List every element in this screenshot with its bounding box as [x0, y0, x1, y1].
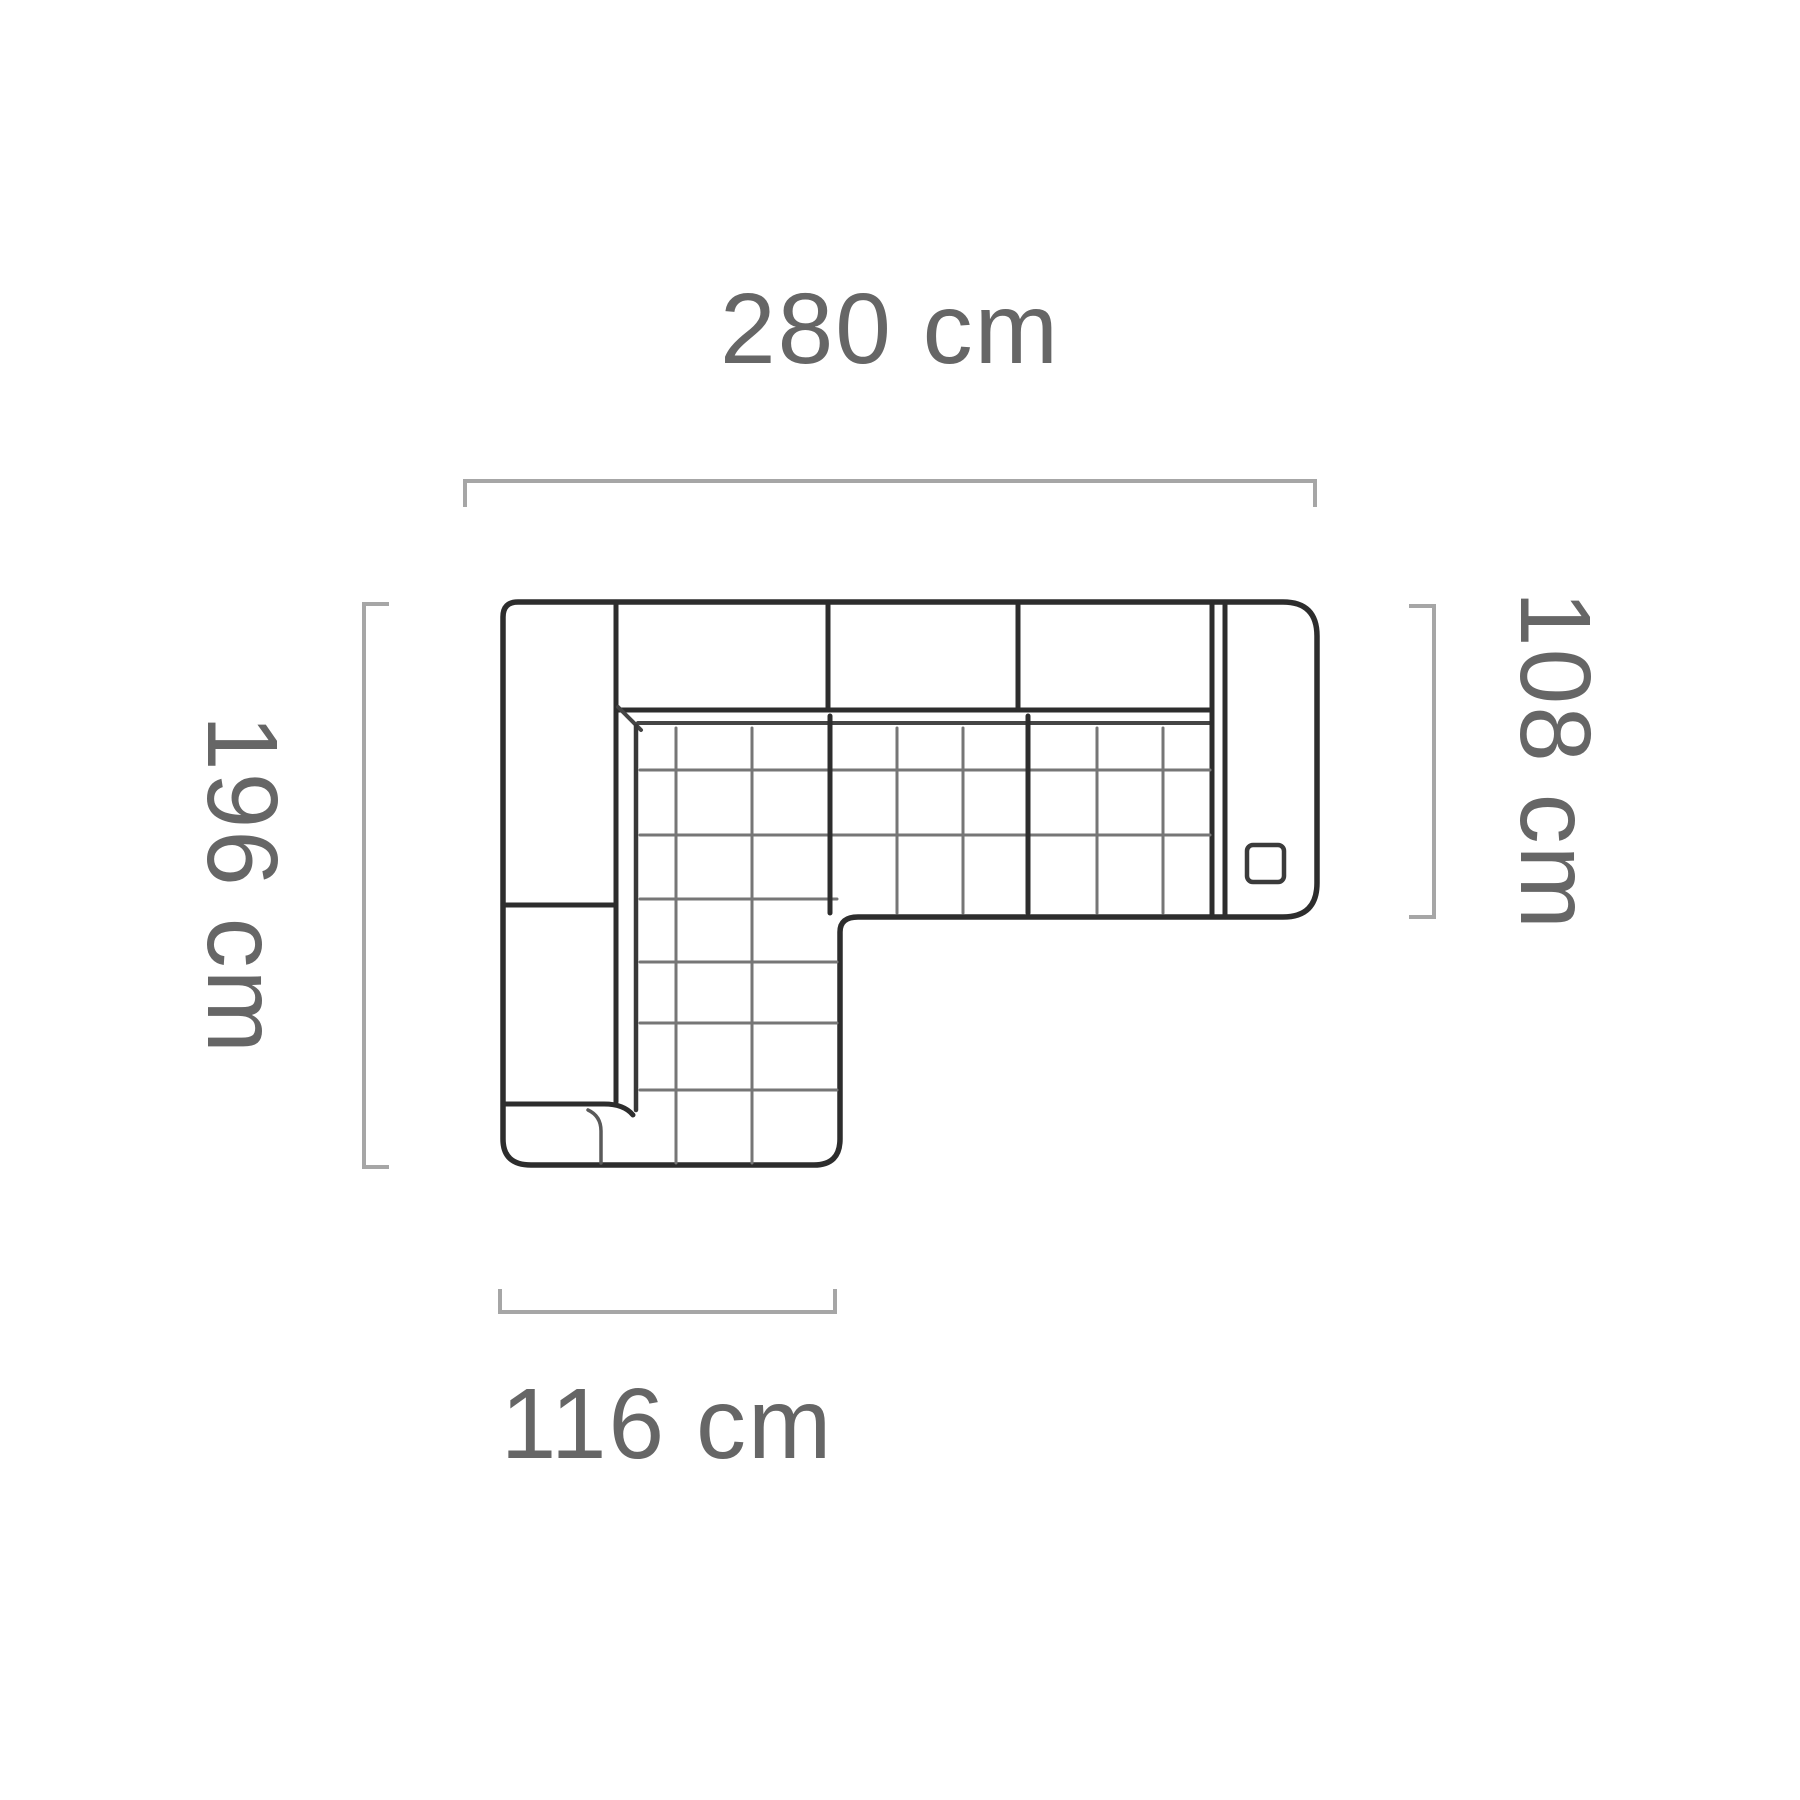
dimension-line-right [1409, 606, 1434, 917]
dimension-line-left [364, 604, 389, 1167]
sofa-outer-outline [503, 602, 1317, 1165]
diagram-canvas: 280 cm 196 cm 108 cm 116 cm [0, 0, 1800, 1800]
dimension-label-bottom: 116 cm [501, 1368, 834, 1480]
sofa-drawing [503, 602, 1317, 1165]
sofa-dimension-diagram: 280 cm 196 cm 108 cm 116 cm [0, 0, 1800, 1800]
dimension-label-top: 280 cm [720, 273, 1060, 385]
dimension-label-left: 196 cm [186, 715, 298, 1055]
dimension-line-top [465, 481, 1315, 507]
dimension-line-bottom [500, 1289, 835, 1312]
dimension-label-right: 108 cm [1499, 591, 1611, 931]
